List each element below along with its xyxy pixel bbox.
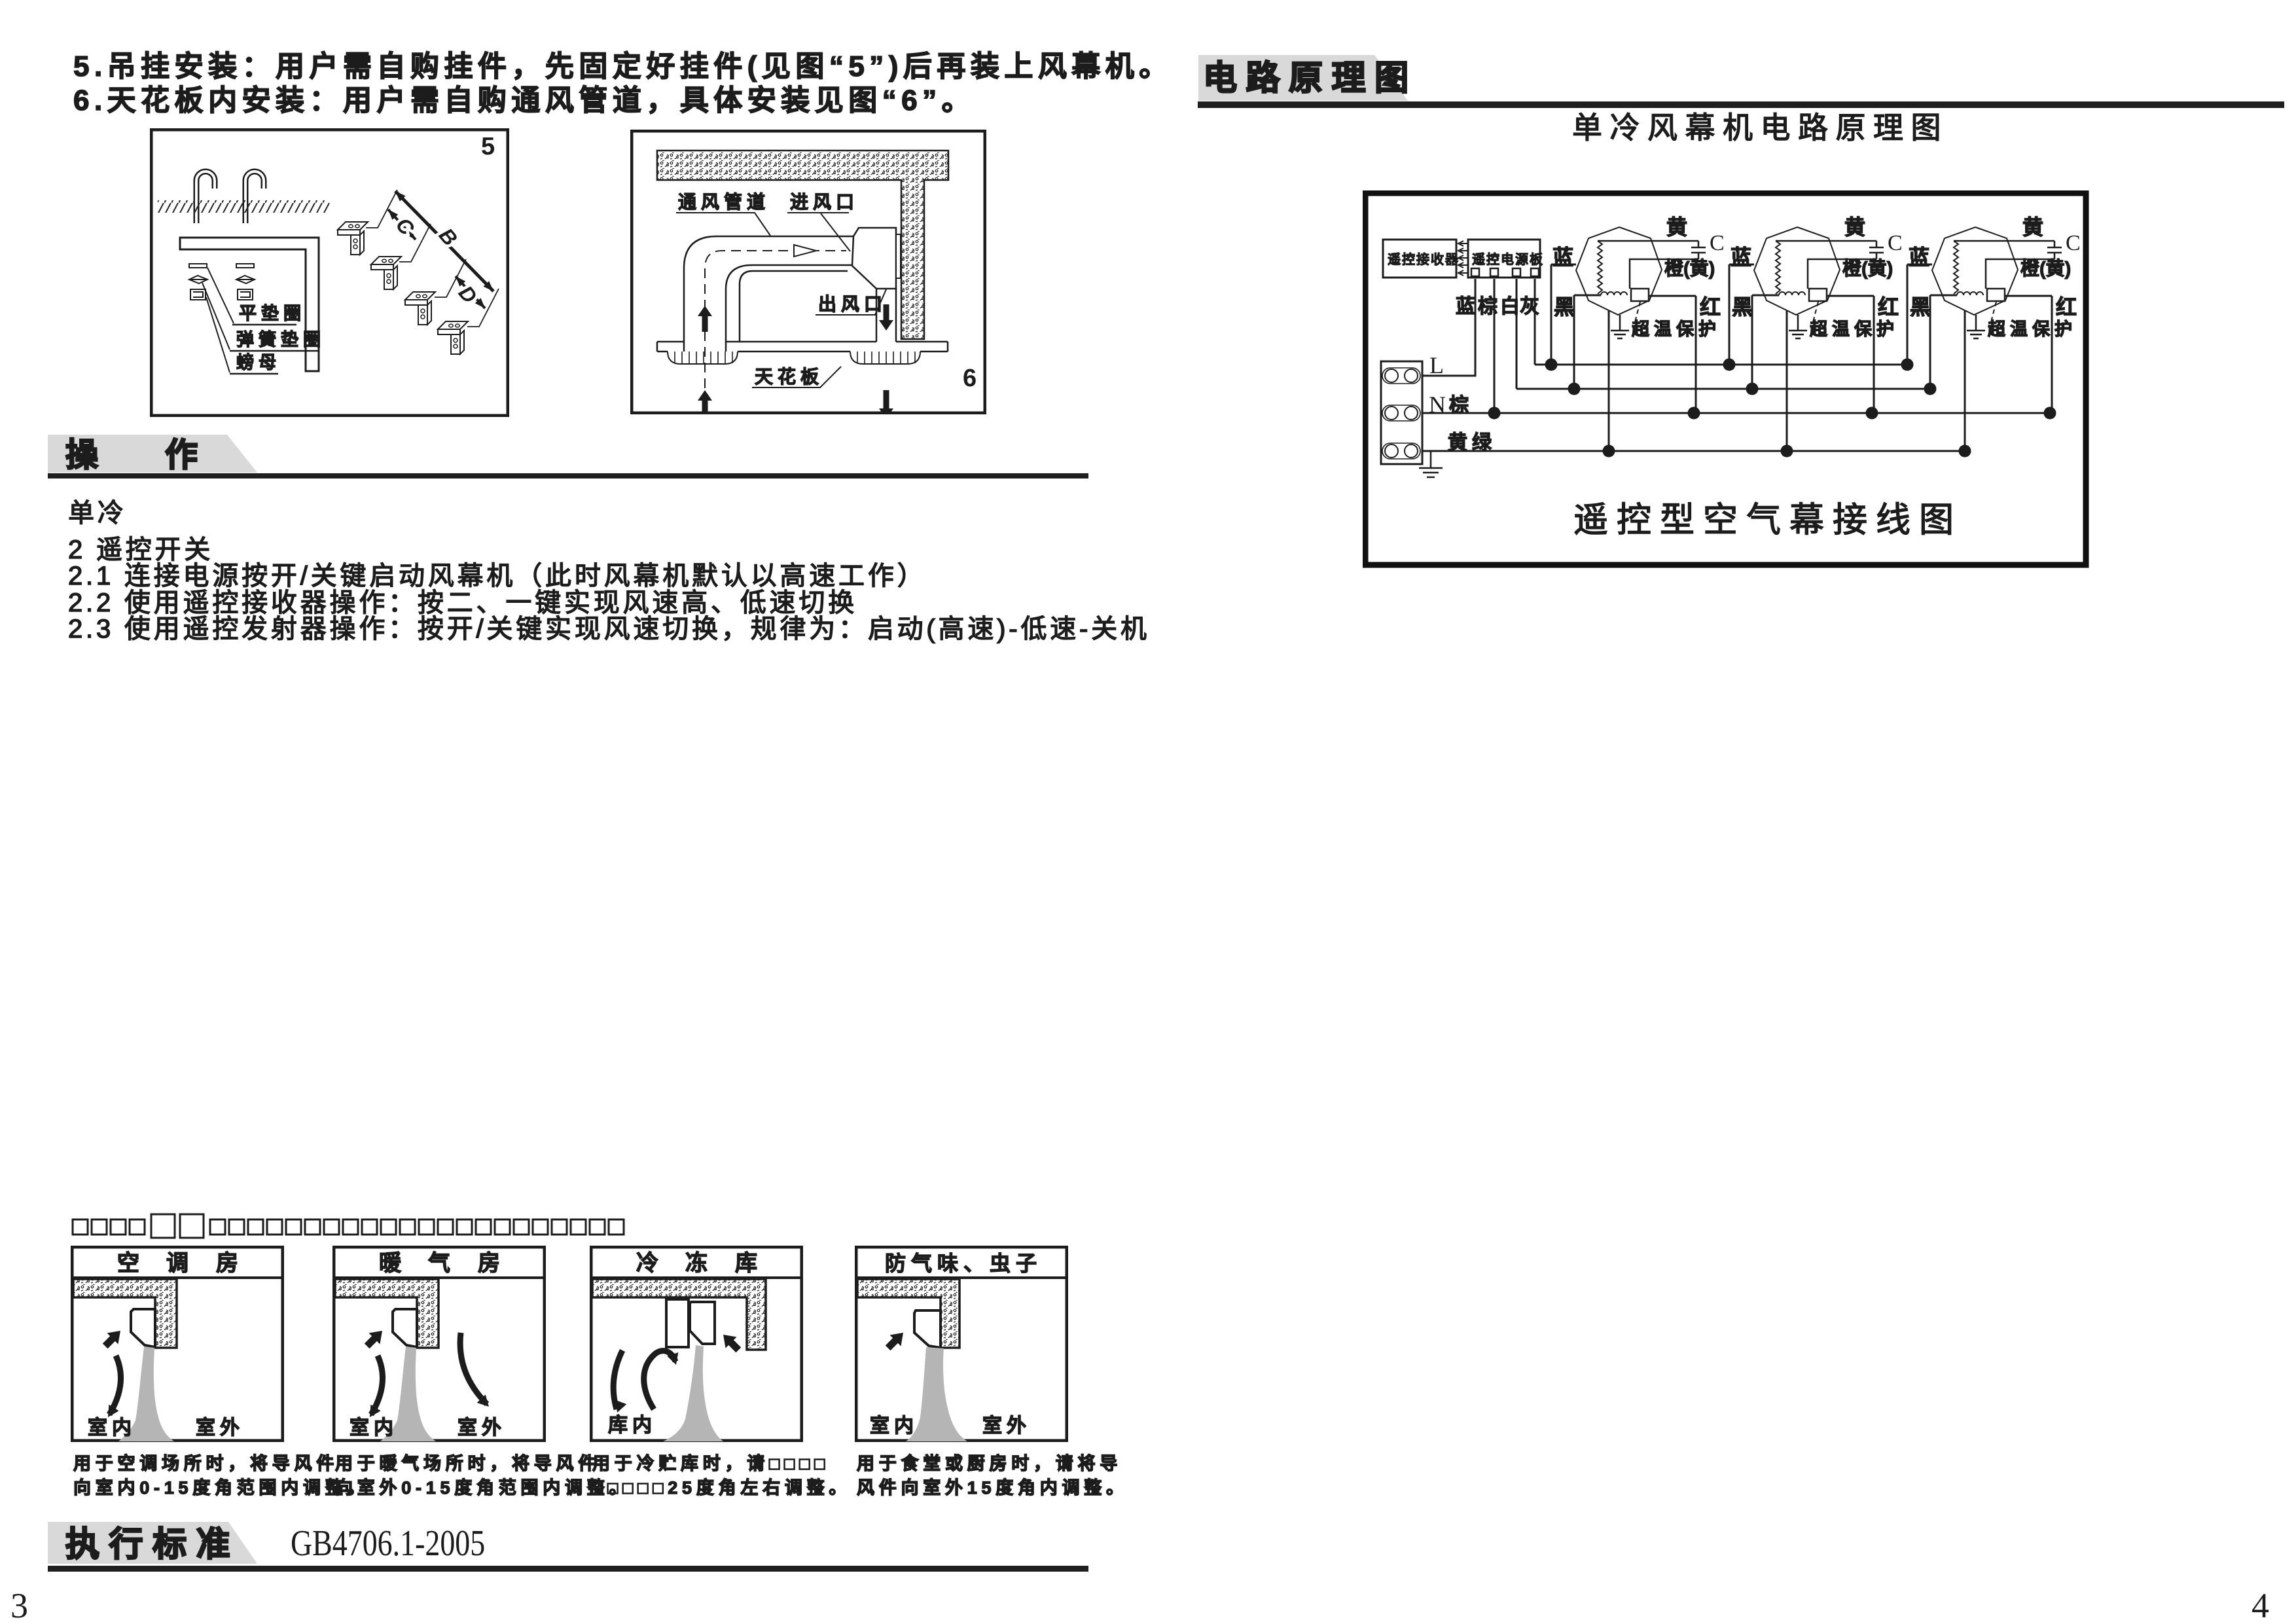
svg-text:房: 房 (216, 1251, 238, 1276)
svg-text:室外: 室外 (457, 1416, 506, 1439)
svg-text:调: 调 (166, 1251, 188, 1276)
svg-text:暖: 暖 (379, 1251, 402, 1276)
svg-text:库内: 库内 (608, 1415, 656, 1436)
svg-text:遥控型空气幕接线图: 遥控型空气幕接线图 (1573, 501, 1962, 539)
svg-text:防气味、虫子: 防气味、虫子 (885, 1252, 1042, 1275)
svg-text:灰: 灰 (1520, 296, 1539, 317)
svg-text:蓝: 蓝 (1456, 296, 1475, 317)
svg-text:B: B (435, 223, 462, 250)
svg-text:库: 库 (735, 1251, 757, 1276)
svg-text:室外: 室外 (982, 1415, 1031, 1437)
svg-text:室内: 室内 (870, 1415, 918, 1437)
svg-text:螃母: 螃母 (236, 352, 281, 372)
svg-text:室外: 室外 (196, 1416, 244, 1439)
svg-text:通风管道: 通风管道 (678, 191, 770, 212)
svg-text:弹簧垫圈: 弹簧垫圈 (236, 329, 325, 350)
svg-text:6: 6 (963, 365, 977, 392)
svg-text:房: 房 (478, 1251, 500, 1276)
svg-text:L: L (1429, 352, 1444, 378)
svg-text:平垫圈: 平垫圈 (239, 304, 306, 323)
svg-text:天花板: 天花板 (755, 367, 823, 387)
svg-text:进风口: 进风口 (790, 192, 859, 212)
svg-text:黄绿: 黄绿 (1448, 432, 1496, 454)
svg-text:冷: 冷 (636, 1251, 658, 1276)
svg-text:5: 5 (481, 133, 495, 160)
svg-text:N: N (1429, 391, 1446, 418)
svg-text:气: 气 (427, 1251, 450, 1276)
svg-text:冻: 冻 (685, 1251, 708, 1276)
svg-text:遥控电源板: 遥控电源板 (1472, 251, 1544, 267)
svg-text:遥控接收器: 遥控接收器 (1388, 251, 1460, 267)
svg-text:空: 空 (117, 1251, 139, 1276)
svg-text:室内: 室内 (350, 1416, 398, 1439)
svg-text:室内: 室内 (88, 1416, 136, 1439)
svg-text:棕: 棕 (1449, 395, 1469, 416)
